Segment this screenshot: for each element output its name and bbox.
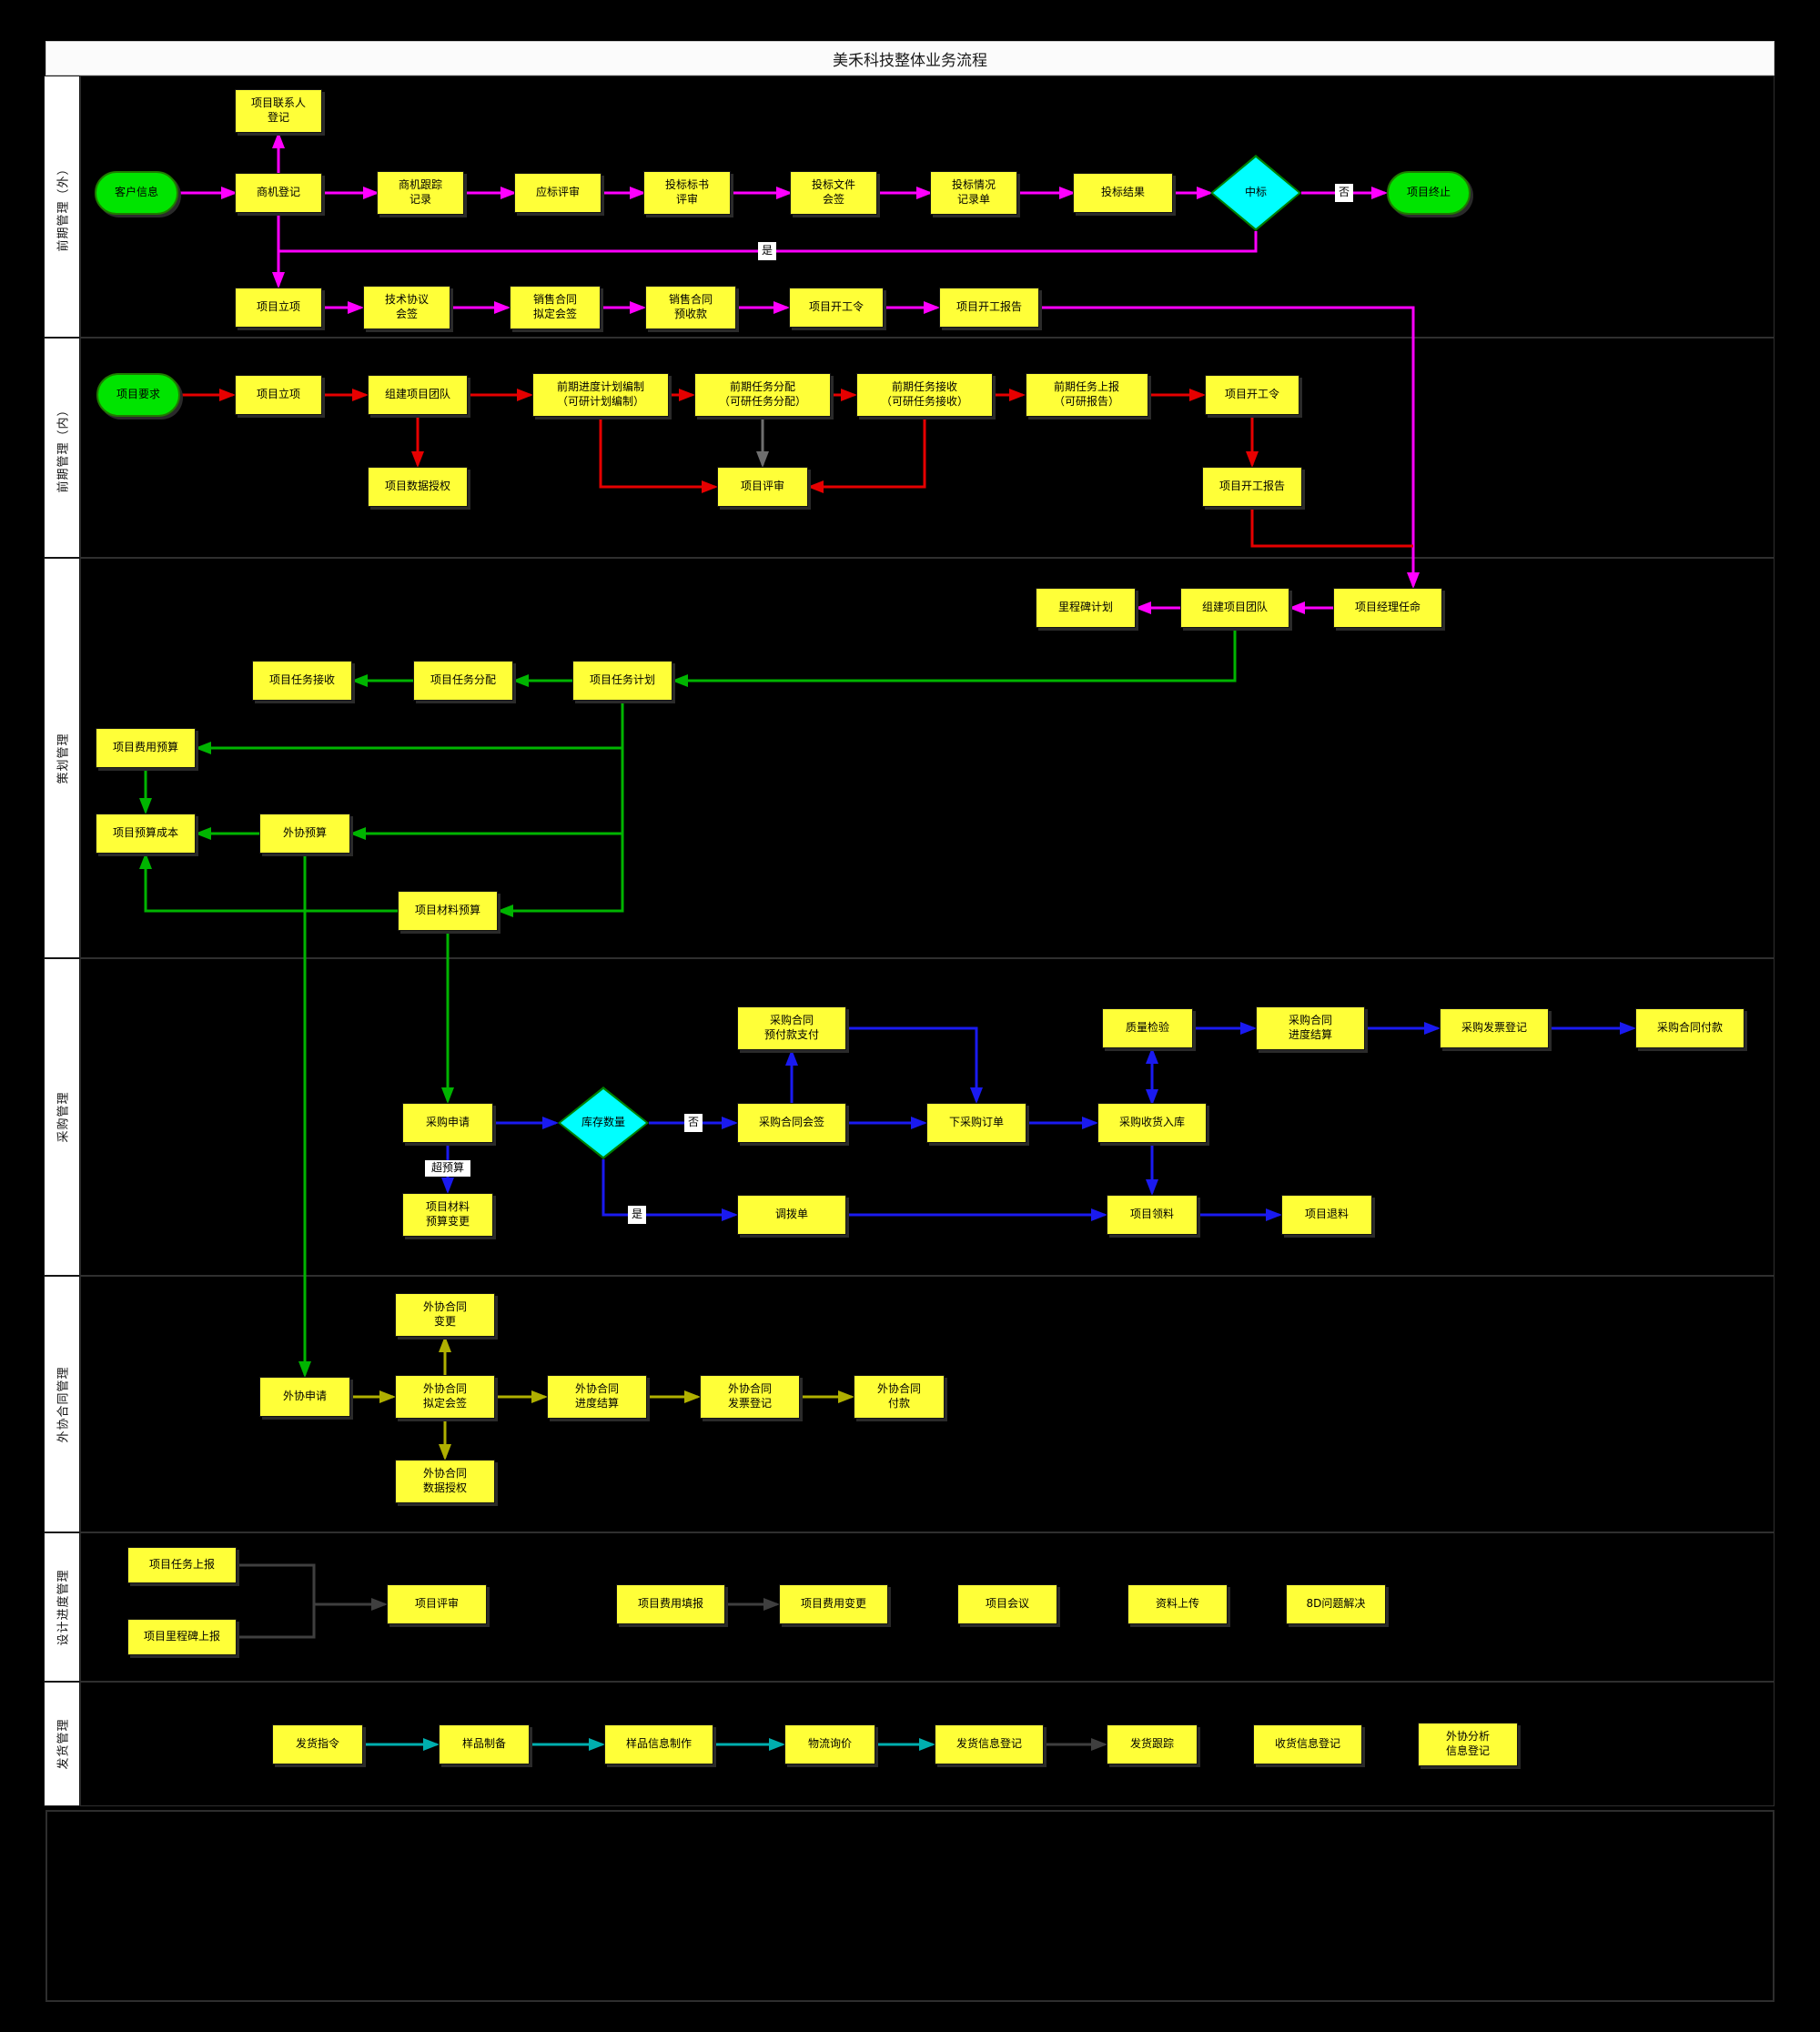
win-bid-decision-text: 中标 xyxy=(1245,186,1267,200)
milestone-report-design-text: 项目里程碑上报 xyxy=(144,1630,220,1644)
oc-payment-text: 外协合同 付款 xyxy=(877,1382,921,1410)
transfer-order-text: 调拨单 xyxy=(775,1208,808,1222)
customer-info-node[interactable]: 客户信息 xyxy=(95,171,178,215)
build-team-int-text: 组建项目团队 xyxy=(385,388,450,402)
ship-order-text: 发货指令 xyxy=(296,1737,339,1752)
edge-green-36 xyxy=(500,701,622,911)
edge-green-33 xyxy=(674,628,1235,681)
decision-no-1-text: 否 xyxy=(1339,186,1350,200)
project-return-material-text: 项目退料 xyxy=(1305,1208,1349,1222)
quality-check-text: 质量检验 xyxy=(1126,1021,1169,1036)
material-budget-change-node[interactable]: 项目材料 预算变更 xyxy=(402,1193,493,1237)
purchase-receive-stock-node[interactable]: 采购收货入库 xyxy=(1097,1103,1207,1143)
sales-contract-draft-text: 销售合同 拟定会签 xyxy=(533,293,577,321)
pre-task-report-text: 前期任务上报 （可研报告） xyxy=(1054,380,1119,409)
project-initiate-ext-text: 项目立项 xyxy=(257,300,300,315)
oc-invoice-register-node[interactable]: 外协合同 发票登记 xyxy=(700,1375,800,1419)
project-task-receive-text: 项目任务接收 xyxy=(269,673,335,688)
project-review-int-text: 项目评审 xyxy=(741,480,784,494)
decision-no-1-label: 否 xyxy=(1335,184,1353,202)
decision-yes-1-text: 是 xyxy=(762,244,773,258)
decision-yes-2-label: 是 xyxy=(628,1206,646,1224)
po-payment-text: 采购合同付款 xyxy=(1657,1021,1723,1036)
start-report-ext-text: 项目开工报告 xyxy=(956,300,1022,315)
milestone-report-design-node[interactable]: 项目里程碑上报 xyxy=(127,1619,237,1655)
sales-contract-draft-node[interactable]: 销售合同 拟定会签 xyxy=(510,286,601,329)
project-task-plan-text: 项目任务计划 xyxy=(590,673,655,688)
project-initiate-ext-node[interactable]: 项目立项 xyxy=(235,288,322,328)
milestone-plan-text: 里程碑计划 xyxy=(1058,601,1113,615)
project-fee-change-node[interactable]: 项目费用变更 xyxy=(779,1584,888,1624)
edge-blue-47 xyxy=(846,1028,976,1101)
sales-contract-advance-text: 销售合同 预收款 xyxy=(669,293,713,321)
po-prepay-text: 采购合同 预付款支付 xyxy=(764,1014,819,1042)
receive-info-register-text: 收货信息登记 xyxy=(1275,1737,1340,1752)
pre-task-assign-text: 前期任务分配 （可研任务分配） xyxy=(719,380,806,409)
sample-prepare-node[interactable]: 样品制备 xyxy=(439,1724,530,1764)
bid-eval-node[interactable]: 应标评审 xyxy=(514,173,602,213)
outsource-analysis-register-text: 外协分析 信息登记 xyxy=(1446,1730,1490,1758)
project-contact-register-node[interactable]: 项目联系人 登记 xyxy=(235,89,322,133)
project-fee-budget-node[interactable]: 项目费用预算 xyxy=(96,728,196,768)
place-purchase-order-text: 下采购订单 xyxy=(949,1116,1004,1130)
oc-progress-settle-text: 外协合同 进度结算 xyxy=(575,1382,619,1410)
build-team-plan-text: 组建项目团队 xyxy=(1202,601,1268,615)
oc-data-auth-node[interactable]: 外协合同 数据授权 xyxy=(395,1460,495,1503)
bid-doc-review-text: 投标标书 评审 xyxy=(665,178,709,207)
bid-record-sheet-node[interactable]: 投标情况 记录单 xyxy=(930,171,1017,215)
project-fee-fill-text: 项目费用填报 xyxy=(638,1597,703,1612)
purchase-apply-node[interactable]: 采购申请 xyxy=(402,1103,493,1143)
task-report-design-node[interactable]: 项目任务上报 xyxy=(127,1547,237,1583)
po-countersign-text: 采购合同会签 xyxy=(759,1116,824,1130)
edge-red-31 xyxy=(1252,507,1413,546)
project-meeting-text: 项目会议 xyxy=(986,1597,1029,1612)
start-order-ext-text: 项目开工令 xyxy=(809,300,864,315)
pm-appoint-text: 项目经理任命 xyxy=(1355,601,1421,615)
project-pick-material-text: 项目领料 xyxy=(1130,1208,1174,1222)
project-terminate-node[interactable]: 项目终止 xyxy=(1387,171,1471,215)
bid-eval-text: 应标评审 xyxy=(536,186,580,200)
project-budget-cost-node[interactable]: 项目预算成本 xyxy=(96,814,196,854)
po-prepay-node[interactable]: 采购合同 预付款支付 xyxy=(737,1006,846,1050)
build-team-int-node[interactable]: 组建项目团队 xyxy=(368,375,468,415)
project-budget-cost-text: 项目预算成本 xyxy=(113,826,178,841)
project-fee-budget-text: 项目费用预算 xyxy=(113,741,178,755)
decision-yes-2-text: 是 xyxy=(632,1208,642,1222)
stock-qty-decision-text: 库存数量 xyxy=(581,1116,625,1130)
decision-no-2-label: 否 xyxy=(684,1114,703,1132)
material-upload-node[interactable]: 资料上传 xyxy=(1127,1584,1228,1624)
over-budget-label: 超预算 xyxy=(425,1160,470,1177)
purchase-receive-stock-text: 采购收货入库 xyxy=(1119,1116,1185,1130)
tech-agreement-countersign-node[interactable]: 技术协议 会签 xyxy=(363,286,450,329)
task-report-design-text: 项目任务上报 xyxy=(149,1558,215,1572)
over-budget-text: 超预算 xyxy=(431,1161,464,1176)
oc-progress-settle-node[interactable]: 外协合同 进度结算 xyxy=(547,1375,647,1419)
outsource-budget-node[interactable]: 外协预算 xyxy=(259,814,350,854)
bid-result-text: 投标结果 xyxy=(1101,186,1145,200)
start-order-ext-node[interactable]: 项目开工令 xyxy=(789,288,884,328)
edge-red-29 xyxy=(810,417,925,487)
material-budget-change-text: 项目材料 预算变更 xyxy=(426,1200,470,1228)
outsource-apply-node[interactable]: 外协申请 xyxy=(259,1377,350,1417)
logistics-inquiry-node[interactable]: 物流询价 xyxy=(784,1724,875,1764)
project-review-int-node[interactable]: 项目评审 xyxy=(717,467,808,507)
pre-plan-compile-node[interactable]: 前期进度计划编制 （可研计划编制） xyxy=(532,373,669,417)
pre-plan-compile-text: 前期进度计划编制 （可研计划编制） xyxy=(557,380,644,409)
outsource-analysis-register-node[interactable]: 外协分析 信息登记 xyxy=(1418,1723,1518,1766)
tech-agreement-countersign-text: 技术协议 会签 xyxy=(385,293,429,321)
project-terminate-text: 项目终止 xyxy=(1407,186,1451,200)
oc-change-text: 外协合同 变更 xyxy=(423,1300,467,1329)
eight-d-solve-node[interactable]: 8D问题解决 xyxy=(1286,1584,1386,1624)
project-fee-change-text: 项目费用变更 xyxy=(801,1597,866,1612)
pre-task-receive-node[interactable]: 前期任务接收 （可研任务接收） xyxy=(856,373,993,417)
decision-no-2-text: 否 xyxy=(688,1116,699,1130)
biz-register-text: 商机登记 xyxy=(257,186,300,200)
project-pick-material-node[interactable]: 项目领料 xyxy=(1107,1195,1198,1235)
sample-info-make-text: 样品信息制作 xyxy=(626,1737,692,1752)
receive-info-register-node[interactable]: 收货信息登记 xyxy=(1253,1724,1362,1764)
pre-task-receive-text: 前期任务接收 （可研任务接收） xyxy=(881,380,968,409)
place-purchase-order-node[interactable]: 下采购订单 xyxy=(926,1103,1026,1143)
start-order-int-node[interactable]: 项目开工令 xyxy=(1205,375,1299,415)
project-review-design-text: 项目评审 xyxy=(415,1597,459,1612)
pre-task-report-node[interactable]: 前期任务上报 （可研报告） xyxy=(1026,373,1148,417)
material-upload-text: 资料上传 xyxy=(1156,1597,1199,1612)
po-invoice-register-text: 采购发票登记 xyxy=(1461,1021,1527,1036)
bid-doc-review-node[interactable]: 投标标书 评审 xyxy=(643,171,731,215)
project-task-plan-node[interactable]: 项目任务计划 xyxy=(572,661,672,701)
edge-dgray-65 xyxy=(237,1565,385,1604)
edge-magenta-17 xyxy=(1039,308,1413,586)
oc-draft-countersign-text: 外协合同 拟定会签 xyxy=(423,1382,467,1410)
project-initiate-int-node[interactable]: 项目立项 xyxy=(235,375,322,415)
po-payment-node[interactable]: 采购合同付款 xyxy=(1635,1008,1744,1048)
project-meeting-node[interactable]: 项目会议 xyxy=(957,1584,1057,1624)
customer-info-text: 客户信息 xyxy=(115,186,158,200)
ship-track-node[interactable]: 发货跟踪 xyxy=(1107,1724,1198,1764)
edge-green-41 xyxy=(146,855,398,911)
project-task-assign-text: 项目任务分配 xyxy=(430,673,496,688)
transfer-order-node[interactable]: 调拨单 xyxy=(737,1195,846,1235)
bid-file-countersign-text: 投标文件 会签 xyxy=(812,178,855,207)
edge-red-28 xyxy=(601,417,715,487)
project-initiate-int-text: 项目立项 xyxy=(257,388,300,402)
oc-change-node[interactable]: 外协合同 变更 xyxy=(395,1293,495,1337)
project-data-auth-text: 项目数据授权 xyxy=(385,480,450,494)
project-material-budget-node[interactable]: 项目材料预算 xyxy=(398,891,498,931)
build-team-plan-node[interactable]: 组建项目团队 xyxy=(1180,588,1289,628)
project-contact-register-text: 项目联系人 登记 xyxy=(251,96,306,125)
ship-info-register-node[interactable]: 发货信息登记 xyxy=(935,1724,1044,1764)
logistics-inquiry-text: 物流询价 xyxy=(808,1737,852,1752)
oc-draft-countersign-node[interactable]: 外协合同 拟定会签 xyxy=(395,1375,495,1419)
project-task-receive-node[interactable]: 项目任务接收 xyxy=(252,661,352,701)
po-progress-settle-node[interactable]: 采购合同 进度结算 xyxy=(1256,1006,1365,1050)
sample-info-make-node[interactable]: 样品信息制作 xyxy=(604,1724,713,1764)
project-data-auth-node[interactable]: 项目数据授权 xyxy=(368,467,468,507)
bid-record-sheet-text: 投标情况 记录单 xyxy=(952,178,996,207)
eight-d-solve-text: 8D问题解决 xyxy=(1307,1597,1366,1612)
sample-prepare-text: 样品制备 xyxy=(462,1737,506,1752)
decision-yes-1-label: 是 xyxy=(758,242,776,260)
stock-qty-decision-node[interactable]: 库存数量 xyxy=(558,1087,649,1159)
outsource-apply-text: 外协申请 xyxy=(283,1390,327,1404)
project-fee-fill-node[interactable]: 项目费用填报 xyxy=(616,1584,725,1624)
ship-info-register-text: 发货信息登记 xyxy=(956,1737,1022,1752)
quality-check-node[interactable]: 质量检验 xyxy=(1102,1008,1193,1048)
start-order-int-text: 项目开工令 xyxy=(1225,388,1279,402)
oc-invoice-register-text: 外协合同 发票登记 xyxy=(728,1382,772,1410)
win-bid-decision-node[interactable]: 中标 xyxy=(1210,155,1301,231)
milestone-plan-node[interactable]: 里程碑计划 xyxy=(1036,588,1136,628)
oc-data-auth-text: 外协合同 数据授权 xyxy=(423,1467,467,1495)
oc-payment-node[interactable]: 外协合同 付款 xyxy=(854,1375,945,1419)
project-require-text: 项目要求 xyxy=(116,388,160,402)
po-countersign-node[interactable]: 采购合同会签 xyxy=(737,1103,846,1143)
start-report-int-text: 项目开工报告 xyxy=(1219,480,1285,494)
ship-order-node[interactable]: 发货指令 xyxy=(272,1724,363,1764)
biz-track-record-text: 商机跟踪 记录 xyxy=(399,178,442,207)
project-return-material-node[interactable]: 项目退料 xyxy=(1281,1195,1372,1235)
start-report-int-node[interactable]: 项目开工报告 xyxy=(1202,467,1302,507)
bid-file-countersign-node[interactable]: 投标文件 会签 xyxy=(790,171,877,215)
edge-dgray-66 xyxy=(237,1605,314,1637)
ship-track-text: 发货跟踪 xyxy=(1130,1737,1174,1752)
edge-blue-55 xyxy=(603,1159,735,1215)
purchase-apply-text: 采购申请 xyxy=(426,1116,470,1130)
biz-register-node[interactable]: 商机登记 xyxy=(235,173,322,213)
sales-contract-advance-node[interactable]: 销售合同 预收款 xyxy=(645,286,736,329)
project-material-budget-text: 项目材料预算 xyxy=(415,904,480,918)
biz-track-record-node[interactable]: 商机跟踪 记录 xyxy=(377,171,464,215)
project-task-assign-node[interactable]: 项目任务分配 xyxy=(413,661,513,701)
pre-task-assign-node[interactable]: 前期任务分配 （可研任务分配） xyxy=(694,373,831,417)
project-require-node[interactable]: 项目要求 xyxy=(96,373,180,417)
start-report-ext-node[interactable]: 项目开工报告 xyxy=(939,288,1039,328)
project-review-design-node[interactable]: 项目评审 xyxy=(387,1584,487,1624)
outsource-budget-text: 外协预算 xyxy=(283,826,327,841)
po-invoice-register-node[interactable]: 采购发票登记 xyxy=(1440,1008,1549,1048)
flowchart-canvas: 美禾科技整体业务流程 前期管理（外）前期管理（内）策划管理采购管理外协合同管理设… xyxy=(0,0,1820,2032)
po-progress-settle-text: 采购合同 进度结算 xyxy=(1289,1014,1332,1042)
bid-result-node[interactable]: 投标结果 xyxy=(1073,173,1173,213)
pm-appoint-node[interactable]: 项目经理任命 xyxy=(1333,588,1442,628)
